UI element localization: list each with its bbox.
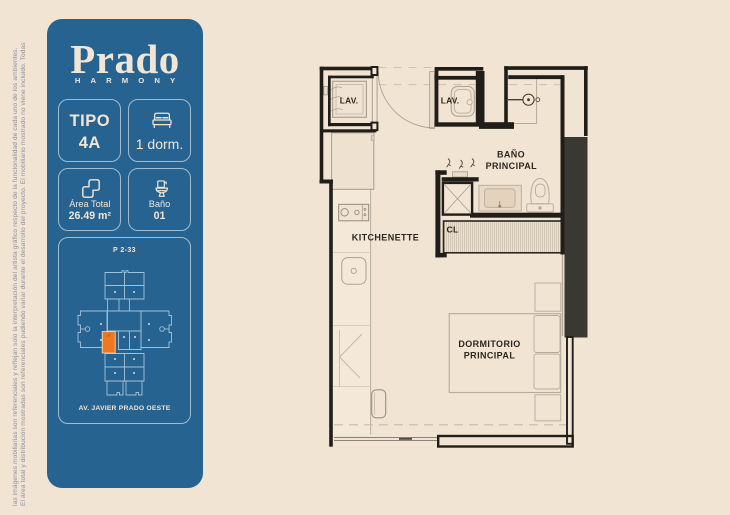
svg-text:LAV.: LAV.	[441, 96, 459, 106]
svg-text:DORMITORIO: DORMITORIO	[458, 339, 520, 349]
svg-text:CL: CL	[447, 225, 459, 235]
svg-text:KITCHENETTE: KITCHENETTE	[352, 233, 419, 243]
svg-text:PRINCIPAL: PRINCIPAL	[486, 161, 538, 171]
svg-text:BAÑO: BAÑO	[497, 149, 525, 159]
svg-text:LAV.: LAV.	[340, 96, 358, 106]
svg-text:PRINCIPAL: PRINCIPAL	[464, 351, 516, 361]
